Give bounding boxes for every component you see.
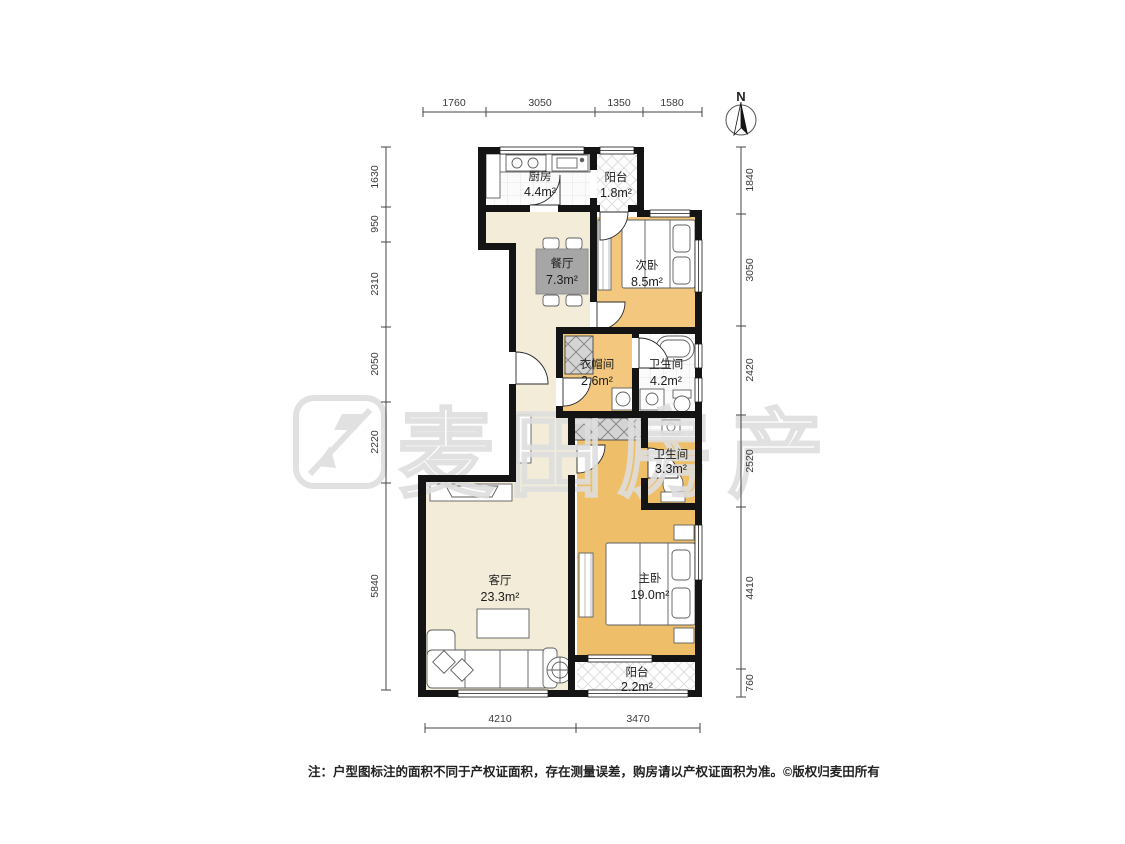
footer: 注：户型图标注的面积不同于产权证面积，存在测量误差，购房请以产权证面积为准。 ©… [308, 761, 820, 780]
dim-left: 5840 [369, 574, 381, 598]
dim-top: 1350 [607, 97, 631, 109]
svg-text:卫生间: 卫生间 [654, 447, 689, 461]
svg-text:19.0m²: 19.0m² [631, 588, 670, 602]
window-icon [695, 378, 702, 402]
svg-text:阳台: 阳台 [626, 665, 649, 679]
room-label-bathroom-b: 卫生间3.3m² [654, 447, 689, 476]
dim-right: 1840 [744, 168, 756, 192]
svg-text:次卧: 次卧 [636, 258, 659, 272]
dim-left: 950 [369, 215, 381, 233]
floorplan-page: 麦田房产 [0, 0, 1125, 844]
dim-left: 2310 [369, 272, 381, 296]
chair-icon [566, 238, 582, 249]
dim-top: 1760 [442, 97, 466, 109]
chair-icon [566, 295, 582, 306]
dim-right: 4410 [744, 576, 756, 600]
dim-right: 760 [744, 674, 756, 692]
nightstand-icon [674, 628, 694, 643]
window-icon [695, 344, 702, 368]
svg-text:衣帽间: 衣帽间 [580, 357, 615, 371]
watermark-text: 麦田房产 [398, 402, 838, 509]
chair-icon [543, 238, 559, 249]
svg-text:主卧: 主卧 [639, 572, 662, 585]
svg-text:4.4m²: 4.4m² [524, 185, 556, 199]
svg-text:23.3m²: 23.3m² [481, 590, 520, 604]
room-label-balcony-south: 阳台2.2m² [621, 665, 653, 694]
svg-text:4.2m²: 4.2m² [650, 374, 682, 388]
dim-left: 2220 [369, 430, 381, 454]
window-icon [600, 147, 634, 154]
svg-text:厨房: 厨房 [529, 170, 552, 183]
svg-text:阳台: 阳台 [605, 170, 628, 184]
svg-text:2.6m²: 2.6m² [581, 374, 613, 388]
north-label: N [736, 89, 745, 104]
svg-text:客厅: 客厅 [489, 573, 512, 587]
svg-text:7.3m²: 7.3m² [546, 273, 578, 287]
nightstand-icon [674, 525, 694, 540]
dim-top: 3050 [528, 97, 552, 109]
room-label-kitchen: 厨房4.4m² [524, 170, 556, 199]
svg-text:8.5m²: 8.5m² [631, 275, 663, 289]
window-icon [695, 240, 702, 292]
svg-text:3.3m²: 3.3m² [655, 462, 687, 476]
coffee-table [477, 609, 529, 638]
svg-text:餐厅: 餐厅 [551, 256, 574, 270]
dim-right: 2420 [744, 358, 756, 382]
dim-top: 1580 [660, 97, 684, 109]
dim-right: 2520 [744, 449, 756, 473]
svg-text:1.8m²: 1.8m² [600, 186, 632, 200]
dim-left: 1630 [369, 165, 381, 189]
dim-bottom: 4210 [488, 713, 512, 725]
window-icon [588, 655, 652, 662]
chair-icon [543, 295, 559, 306]
dim-right: 3050 [744, 258, 756, 282]
north-compass-icon: N [726, 89, 756, 135]
svg-text:2.2m²: 2.2m² [621, 680, 653, 694]
window-icon [500, 147, 584, 154]
dining-table [536, 249, 588, 294]
copyright-text: ©版权归麦田所有 [783, 761, 880, 780]
disclaimer-note: 注：户型图标注的面积不同于产权证面积，存在测量误差，购房请以产权证面积为准。 [308, 761, 783, 780]
dim-left: 2050 [369, 352, 381, 376]
dresser-icon [579, 553, 593, 617]
dim-bottom: 3470 [626, 713, 650, 725]
svg-text:卫生间: 卫生间 [649, 357, 684, 371]
window-icon [695, 525, 702, 580]
floorplan-drawing: 麦田房产 [0, 0, 1125, 844]
window-icon [458, 690, 548, 697]
window-icon [650, 210, 690, 217]
